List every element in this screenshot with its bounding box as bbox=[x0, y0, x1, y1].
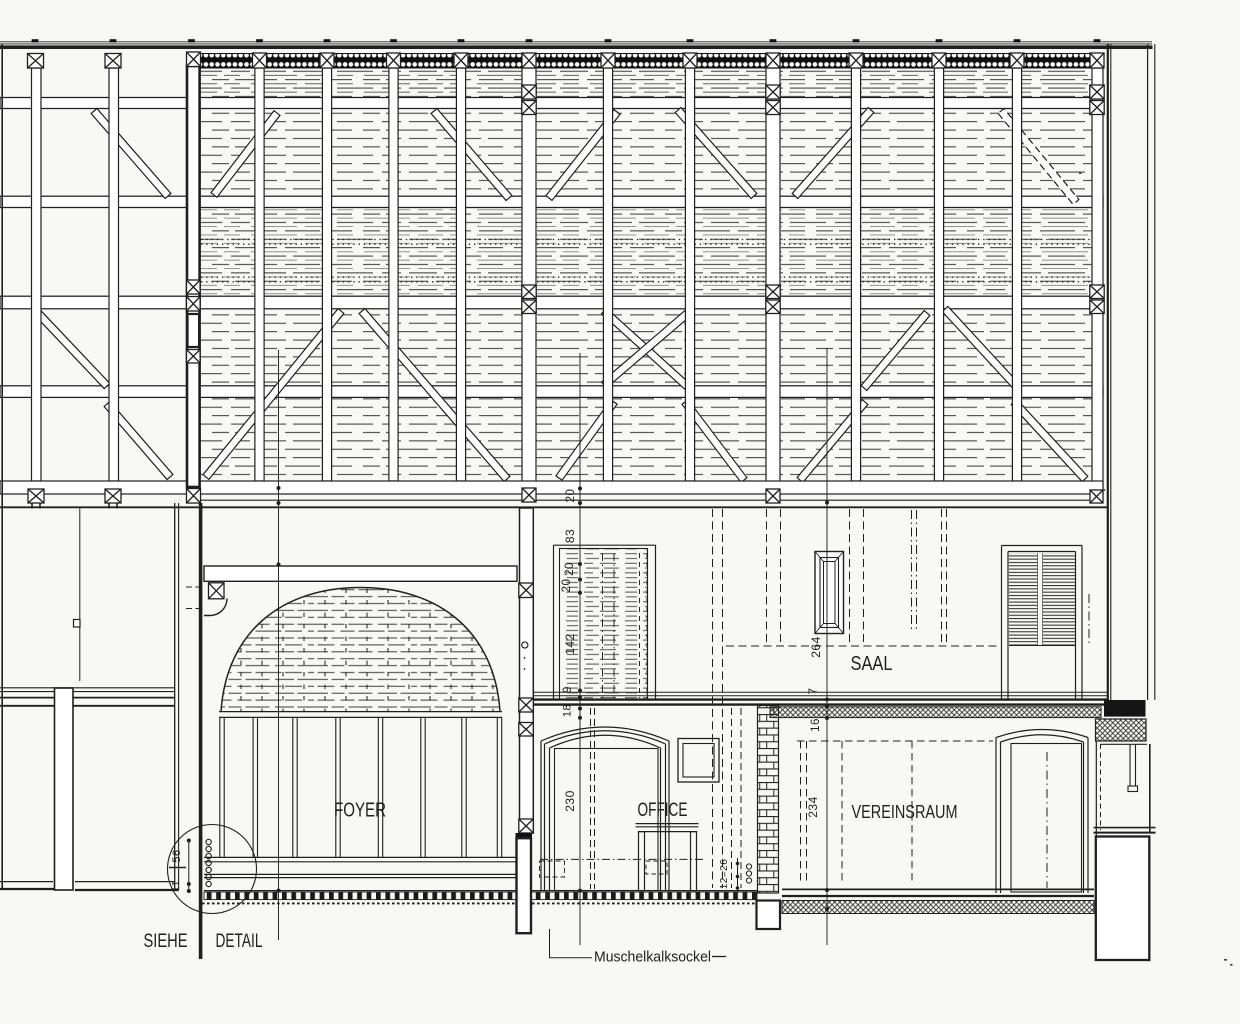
svg-text:SAAL: SAAL bbox=[851, 653, 893, 675]
svg-text:9: 9 bbox=[562, 686, 574, 693]
svg-text:83: 83 bbox=[563, 529, 577, 543]
svg-text:20: 20 bbox=[564, 562, 576, 576]
svg-text:234: 234 bbox=[806, 796, 820, 818]
svg-text:FOYER: FOYER bbox=[334, 800, 386, 822]
svg-text:VEREINSRAUM: VEREINSRAUM bbox=[852, 802, 958, 822]
svg-text:18: 18 bbox=[562, 704, 574, 717]
svg-text:20: 20 bbox=[561, 579, 573, 593]
svg-text:230: 230 bbox=[563, 790, 577, 812]
svg-text:264: 264 bbox=[809, 636, 823, 658]
svg-text:142: 142 bbox=[563, 633, 577, 655]
svg-text:Muschelkalksockel: Muschelkalksockel bbox=[594, 949, 711, 966]
svg-text:7: 7 bbox=[808, 688, 820, 695]
svg-text:11: 11 bbox=[170, 880, 182, 892]
svg-text:OFFICE: OFFICE bbox=[638, 800, 688, 821]
svg-text:DETAIL: DETAIL bbox=[216, 931, 263, 952]
svg-text:20: 20 bbox=[565, 489, 577, 503]
svg-text:56: 56 bbox=[171, 849, 183, 862]
svg-text:SIEHE: SIEHE bbox=[144, 931, 188, 952]
svg-text:12=26: 12=26 bbox=[719, 859, 730, 890]
svg-text:16: 16 bbox=[810, 718, 822, 732]
